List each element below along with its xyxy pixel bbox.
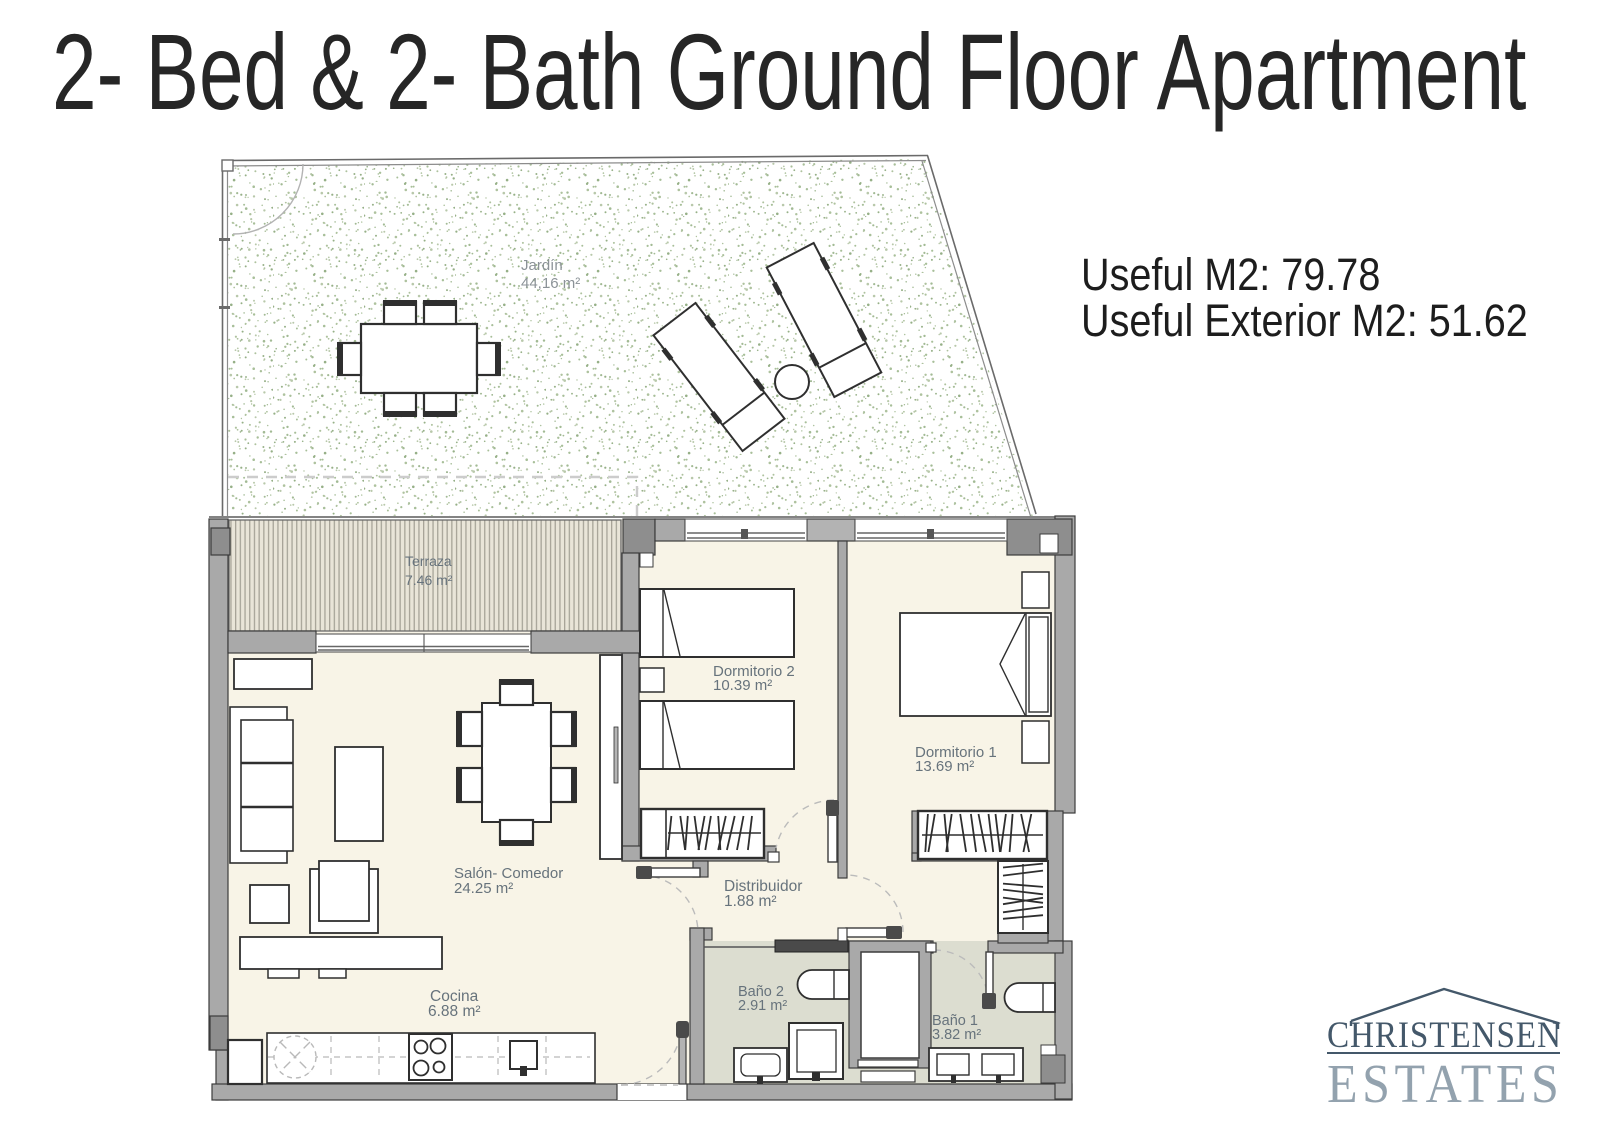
- svg-text:3.82 m²: 3.82 m²: [932, 1027, 981, 1043]
- svg-text:6.88 m²: 6.88 m²: [428, 1003, 481, 1020]
- svg-text:2.91 m²: 2.91 m²: [738, 998, 787, 1014]
- svg-text:13.69 m²: 13.69 m²: [915, 758, 974, 775]
- svg-text:24.25 m²: 24.25 m²: [454, 880, 513, 897]
- svg-text:1.88 m²: 1.88 m²: [724, 893, 777, 910]
- svg-text:44,16 m²: 44,16 m²: [521, 275, 580, 292]
- svg-text:Terraza: Terraza: [405, 553, 452, 569]
- svg-text:7.46 m²: 7.46 m²: [405, 572, 453, 588]
- svg-text:10.39 m²: 10.39 m²: [713, 677, 772, 694]
- svg-text:Jardín: Jardín: [521, 257, 563, 274]
